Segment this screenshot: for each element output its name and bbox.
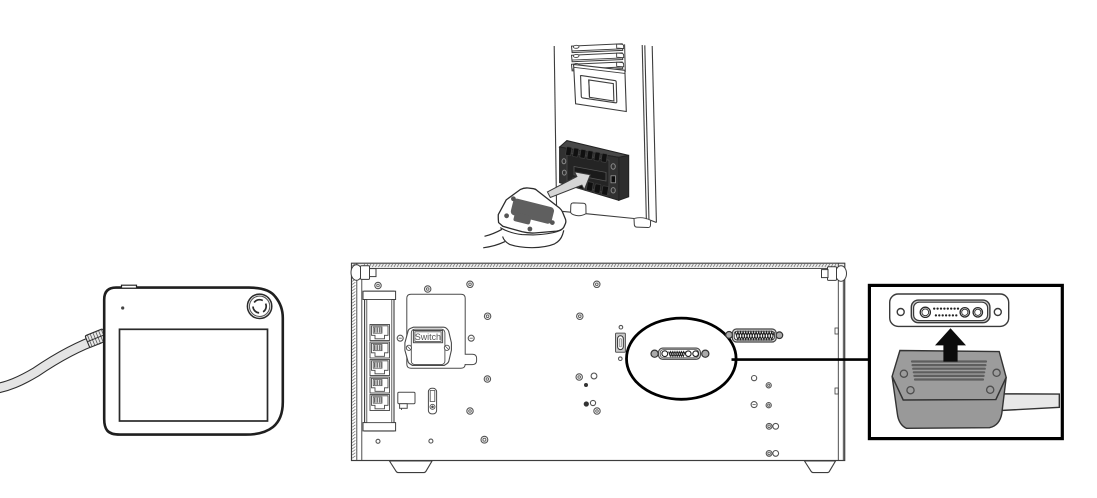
svg-text:Switch: Switch: [415, 332, 441, 342]
